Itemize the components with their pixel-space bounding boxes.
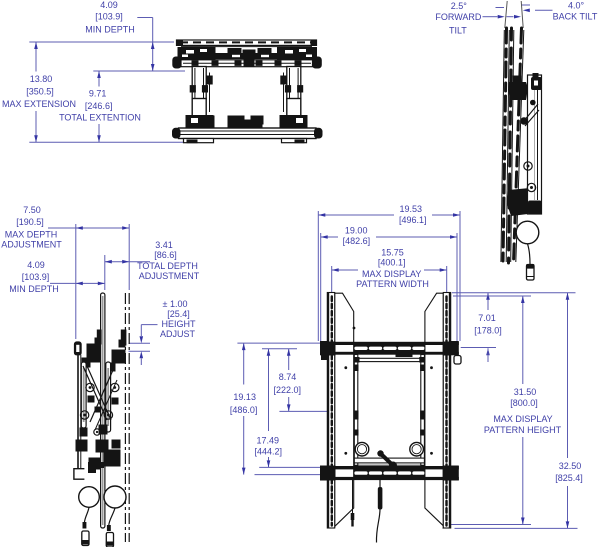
- svg-text:[103.9]: [103.9]: [95, 12, 123, 22]
- svg-text:[444.2]: [444.2]: [255, 447, 283, 457]
- svg-text:[482.6]: [482.6]: [343, 236, 371, 246]
- svg-text:[400.1]: [400.1]: [378, 258, 406, 268]
- svg-text:9.71: 9.71: [89, 89, 107, 99]
- svg-text:[178.0]: [178.0]: [474, 326, 502, 336]
- svg-text:[190.5]: [190.5]: [16, 217, 44, 227]
- svg-text:ADJUSTMENT: ADJUSTMENT: [139, 271, 200, 281]
- svg-text:[350.5]: [350.5]: [26, 87, 54, 97]
- svg-text:15.75: 15.75: [381, 248, 404, 258]
- svg-text:13.80: 13.80: [30, 74, 53, 84]
- svg-text:[800.0]: [800.0]: [510, 398, 538, 408]
- svg-text:8.74: 8.74: [279, 372, 297, 382]
- svg-text:MAX DISPLAY: MAX DISPLAY: [493, 414, 552, 424]
- svg-text:32.50: 32.50: [559, 461, 582, 471]
- svg-text:MIN DEPTH: MIN DEPTH: [85, 25, 135, 35]
- svg-text:TOTAL DEPTH: TOTAL DEPTH: [137, 261, 198, 271]
- svg-text:[103.9]: [103.9]: [22, 272, 50, 282]
- svg-text:7.50: 7.50: [23, 205, 41, 215]
- svg-text:3.41: 3.41: [155, 240, 173, 250]
- svg-text:2.5°: 2.5°: [451, 1, 468, 11]
- svg-text:PATTERN WIDTH: PATTERN WIDTH: [356, 279, 429, 289]
- svg-text:[86.6]: [86.6]: [154, 250, 177, 260]
- svg-text:4.09: 4.09: [100, 0, 118, 10]
- svg-text:HEIGHT: HEIGHT: [161, 319, 196, 329]
- svg-text:TILT: TILT: [449, 26, 467, 36]
- svg-text:FORWARD: FORWARD: [435, 12, 481, 22]
- svg-text:[496.1]: [496.1]: [399, 215, 427, 225]
- svg-text:± 1.00: ± 1.00: [163, 299, 188, 309]
- svg-text:7.01: 7.01: [478, 313, 496, 323]
- svg-text:TOTAL EXTENTION: TOTAL EXTENTION: [59, 112, 141, 122]
- svg-text:19.13: 19.13: [233, 392, 256, 402]
- svg-text:MAX EXTENSION: MAX EXTENSION: [2, 99, 76, 109]
- svg-text:[825.4]: [825.4]: [555, 473, 583, 483]
- svg-text:ADJUST: ADJUST: [160, 329, 196, 339]
- svg-text:ADJUSTMENT: ADJUSTMENT: [1, 240, 62, 250]
- svg-text:19.00: 19.00: [345, 226, 368, 236]
- svg-text:[486.0]: [486.0]: [230, 405, 258, 415]
- svg-text:[222.0]: [222.0]: [274, 385, 302, 395]
- svg-text:MAX DISPLAY: MAX DISPLAY: [362, 269, 421, 279]
- svg-text:BACK TILT: BACK TILT: [553, 12, 598, 22]
- svg-text:31.50: 31.50: [514, 387, 537, 397]
- svg-text:17.49: 17.49: [257, 436, 280, 446]
- svg-text:MIN DEPTH: MIN DEPTH: [9, 284, 59, 294]
- svg-text:4.09: 4.09: [27, 260, 45, 270]
- svg-text:PATTERN HEIGHT: PATTERN HEIGHT: [484, 425, 562, 435]
- svg-text:4.0°: 4.0°: [568, 1, 585, 11]
- svg-text:[246.6]: [246.6]: [85, 101, 113, 111]
- svg-text:[25.4]: [25.4]: [167, 309, 190, 319]
- svg-text:MAX DEPTH: MAX DEPTH: [5, 230, 58, 240]
- svg-text:19.53: 19.53: [400, 204, 423, 214]
